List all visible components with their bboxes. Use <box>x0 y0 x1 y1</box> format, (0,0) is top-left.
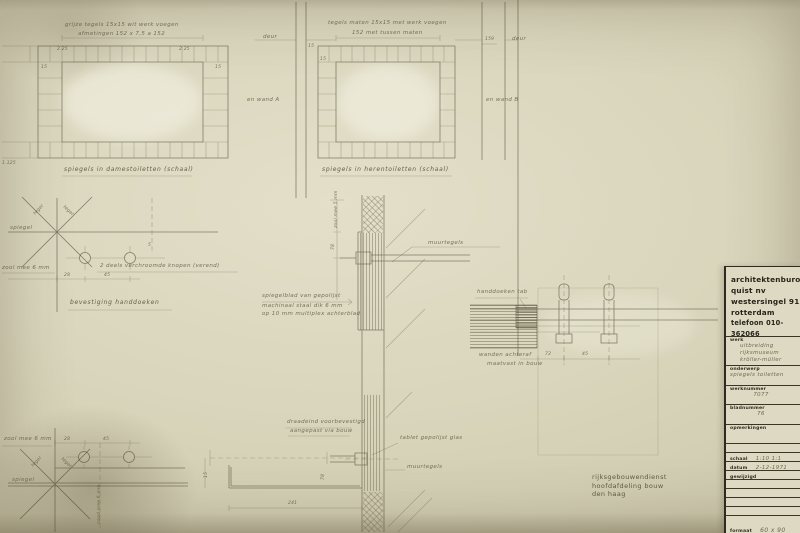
mirror-panel-note-2: machinaal staal dik 6 mm <box>262 303 343 310</box>
dim-label: 2.25 <box>179 46 190 53</box>
drawing-sheet: grijze tegels 15x15 wit werk voegen afme… <box>0 0 800 533</box>
dim-label: 72 <box>545 351 551 358</box>
firm-city: rotterdam <box>731 307 800 318</box>
caption-damestoiletten: spiegels in damestoiletten (schaal) <box>64 166 194 173</box>
field-formaat-label: formaat <box>730 529 752 533</box>
firm-name-2: quist nv <box>731 285 800 296</box>
dim-label: 241 <box>288 500 297 507</box>
field-formaat-value: 60 x 90 <box>760 527 785 533</box>
field-werknummer-value: 7077 <box>730 392 800 399</box>
grid-and-dimension-lines <box>2 35 640 532</box>
field-datum: datum 2-12-1971 <box>726 452 800 461</box>
site-fit-note-2: maatvast in bouw <box>487 361 543 368</box>
site-fit-note-1: wanden achteraf <box>479 352 531 359</box>
firm-name: architektenburo <box>731 274 800 285</box>
dim-label: 45 <box>582 351 588 358</box>
note-tiles-middle: tegels maten 15x15 met werk voegen <box>328 20 447 27</box>
dim-label-vertical: 15 <box>203 472 210 478</box>
stamp-line: rijksgebouwendienst <box>592 473 667 482</box>
revision-row-empty <box>726 497 800 506</box>
werk-value-line: rijksmuseum <box>740 350 800 357</box>
field-opmerkingen-label: opmerkingen <box>730 426 800 431</box>
field-formaat: formaat 60 x 90 <box>726 515 800 533</box>
mirror-panel-note-1: spiegelblad van gepolijst <box>262 293 341 300</box>
mirror-line-label: spiegel <box>12 477 34 484</box>
title-block: architektenburo quist nv westersingel 91… <box>724 266 800 533</box>
screw-head <box>125 253 136 264</box>
field-werk-value: uitbreiding rijksmuseum kröller-müller <box>740 343 800 364</box>
threaded-rod-note-1: draadeind voorbevestigd <box>287 419 365 426</box>
seam-label: zool mee 6 mm <box>4 436 52 443</box>
tablet-label: tablet gepolijst glas <box>400 435 463 442</box>
field-bladnummer: bladnummer 76 <box>726 404 800 424</box>
field-opmerkingen: opmerkingen <box>726 424 800 443</box>
werk-value-line: kröller-müller <box>740 357 800 364</box>
tile-size-label: 15 <box>308 43 314 50</box>
wall-tiles-label: muurtegels <box>407 464 442 471</box>
seam-label: zool mee 6 mm <box>2 265 50 272</box>
revision-row-empty <box>726 470 800 479</box>
door-label-right: deur <box>512 36 526 43</box>
dim-label: 5 <box>148 242 151 249</box>
dim-label: 45 <box>104 272 110 279</box>
dim-label-vertical: 78 <box>330 244 337 250</box>
screw-head <box>80 253 91 264</box>
field-onderwerp: onderwerp spiegels toiletten <box>726 365 800 385</box>
field-bladnummer-value: 76 <box>730 411 800 418</box>
dim-label-vertical: 78 <box>320 474 327 480</box>
werk-value-line: uitbreiding <box>740 343 800 350</box>
caption-herentoiletten: spiegels in herentoiletten (schaal) <box>322 166 449 173</box>
screw-head <box>124 452 135 463</box>
wall-tiles-label: muurtegels <box>428 240 463 247</box>
revision-row-empty <box>726 488 800 497</box>
dim-label: 159 <box>485 36 494 43</box>
tile-size-label: 15 <box>41 64 47 71</box>
note-tiles-left: grijze tegels 15x15 wit werk voegen <box>65 22 179 29</box>
note-dimensions-middle: 152 met tussen maten <box>352 30 423 37</box>
tile-size-label: 15 <box>215 64 221 71</box>
seam-label-vertical: naad mee 6 mm <box>96 484 103 524</box>
field-werknummer: werknummer 7077 <box>726 385 800 404</box>
stamp-line: den haag <box>592 490 667 499</box>
mirror-panel-note-3: op 10 mm multiplex achterblad <box>262 311 360 318</box>
tile-size-label: 15 <box>320 56 326 63</box>
stamp-line: hoofdafdeling bouw <box>592 482 667 491</box>
field-gewijzigd: gewijzigd <box>726 461 800 470</box>
dim-label: 45 <box>103 436 109 443</box>
chrome-knobs-note: 2 deels verchroomde knopen (verend) <box>100 263 220 270</box>
dim-label: 2.25 <box>57 46 68 53</box>
field-schaal: schaal 1:10 1:1 <box>726 443 800 452</box>
firm-address: architektenburo quist nv westersingel 91… <box>726 267 800 336</box>
dim-label: 28 <box>64 272 70 279</box>
field-werk: werk uitbreiding rijksmuseum kröller-mül… <box>726 336 800 365</box>
firm-street: westersingel 91 <box>731 296 800 307</box>
threaded-rod-note-2: aangepast via bouw <box>290 428 353 435</box>
screw-head <box>79 452 90 463</box>
dim-label: 28 <box>64 436 70 443</box>
mirror-line-label: spiegel <box>10 225 32 232</box>
dim-label: 1.125 <box>2 160 16 167</box>
seam-label-vertical: zool mee 5 mm <box>333 190 340 228</box>
wall-a-label: en wand A <box>247 97 280 104</box>
note-dimensions-left: afmetingen 152 x 7,5 a 152 <box>78 31 165 38</box>
faint-layout-rectangle <box>538 288 658 455</box>
field-onderwerp-value: spiegels toiletten <box>730 372 800 379</box>
wall-b-label: en wand B <box>486 97 519 104</box>
towel-tab-label: handdoeken tab <box>477 289 528 296</box>
rijksgebouwendienst-stamp: rijksgebouwendienst hoofdafdeling bouw d… <box>592 473 667 499</box>
door-label-left: deur <box>263 34 277 41</box>
revision-row-empty <box>726 506 800 515</box>
revision-row-empty <box>726 479 800 488</box>
caption-bevestiging-handdoeken: bevestiging handdoeken <box>70 299 160 306</box>
